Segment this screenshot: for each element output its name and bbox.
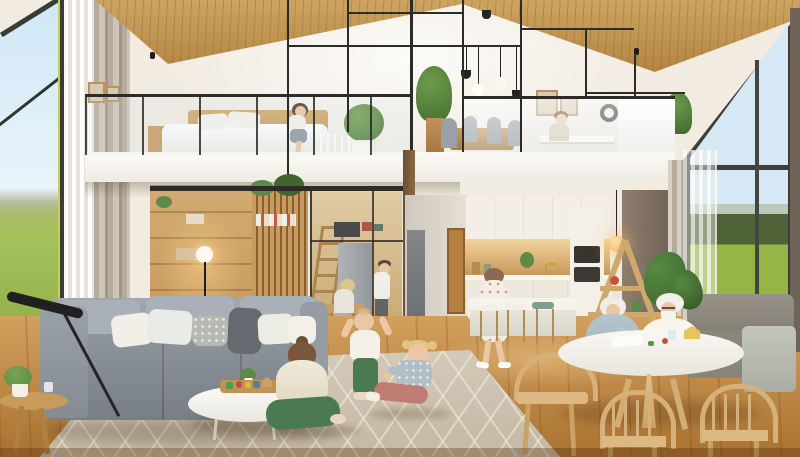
kitchen-jar	[472, 262, 480, 274]
steel-frame-post	[462, 0, 464, 152]
hallway-gray-door	[407, 230, 425, 320]
bar-stool-legs	[507, 310, 525, 342]
glass-cup	[44, 382, 53, 392]
pendant-lamp-shade	[482, 10, 491, 19]
toy-block-green	[226, 382, 233, 389]
hallway-wood-door	[447, 228, 465, 314]
shelf-toy-block	[632, 302, 641, 311]
toy-block-blue	[253, 381, 260, 388]
steel-frame-post	[287, 0, 289, 190]
grandfather-glasses	[662, 307, 675, 309]
ceiling-spotlight	[634, 48, 639, 55]
steel-frame-post	[585, 28, 587, 98]
kitchen-plant	[520, 252, 534, 268]
green-bar-stool	[532, 302, 554, 309]
bar-stool-legs	[536, 309, 554, 343]
shelf-plant	[156, 196, 172, 208]
toy-block-red	[236, 381, 242, 388]
ceiling-spotlight	[150, 52, 155, 59]
child-shadow	[370, 408, 450, 420]
steel-frame-post	[347, 0, 349, 132]
oven-window	[574, 267, 600, 282]
loft-dining-chair	[441, 118, 457, 148]
round-dining-table	[558, 330, 744, 376]
steel-frame-beam	[520, 28, 634, 30]
loft-tree-plant	[416, 66, 452, 122]
globe-floor-lamp	[196, 246, 213, 263]
toddler-hair	[358, 308, 370, 315]
steel-frame-beam	[287, 45, 520, 47]
sofa-pillow-white	[147, 309, 193, 346]
walking-woman-shoe	[498, 362, 511, 368]
partition-top-beam	[150, 186, 407, 191]
side-table-plant-pot	[12, 384, 28, 397]
partition-frame	[372, 186, 374, 336]
frosted-railing-panel	[618, 99, 675, 152]
glass-jar	[668, 330, 676, 340]
loft-glass-railing-left	[85, 94, 410, 155]
dining-chair-seat	[602, 436, 666, 447]
partition-frame	[310, 240, 405, 242]
dining-chair-seat	[516, 392, 588, 404]
shelf-decor-box	[176, 248, 198, 260]
pendant-globe-lamp	[494, 77, 507, 90]
pendant-cord	[516, 45, 517, 91]
shelf-decor-box	[186, 214, 204, 224]
sofa-pillow-dotted	[192, 316, 228, 346]
pendant-cord	[478, 45, 479, 85]
toddler-white-shirt	[350, 330, 380, 360]
shelf-toy-ball	[610, 276, 619, 285]
home-interior-scene	[0, 0, 800, 457]
side-table-top	[0, 392, 68, 410]
screen-top-plant	[274, 174, 304, 196]
craft-piece-green	[648, 341, 654, 346]
bar-stool-legs	[480, 311, 498, 341]
oven-window	[574, 246, 600, 263]
girl-pigtails-hand	[384, 372, 391, 379]
steel-frame-beam	[585, 92, 685, 94]
toy-block-yellow	[245, 382, 251, 388]
dining-chair-seat	[702, 430, 768, 441]
floor-edge-shading	[0, 448, 800, 457]
book-row	[256, 214, 296, 226]
mezzanine-floor-slab	[85, 152, 675, 182]
girl-ponytail-green-pants	[265, 395, 341, 430]
girl-ponytail-foot	[330, 414, 346, 424]
steel-frame-post	[520, 0, 522, 152]
pendant-cord	[466, 45, 467, 71]
pendant-cord	[500, 45, 501, 78]
gray-settee-arm	[742, 326, 796, 392]
pendant-globe-lamp	[472, 84, 484, 96]
pendant-cord	[616, 190, 617, 238]
grandmother-hair-bun	[612, 291, 622, 299]
craft-piece-red	[662, 338, 668, 344]
steel-frame-beam	[347, 12, 462, 14]
